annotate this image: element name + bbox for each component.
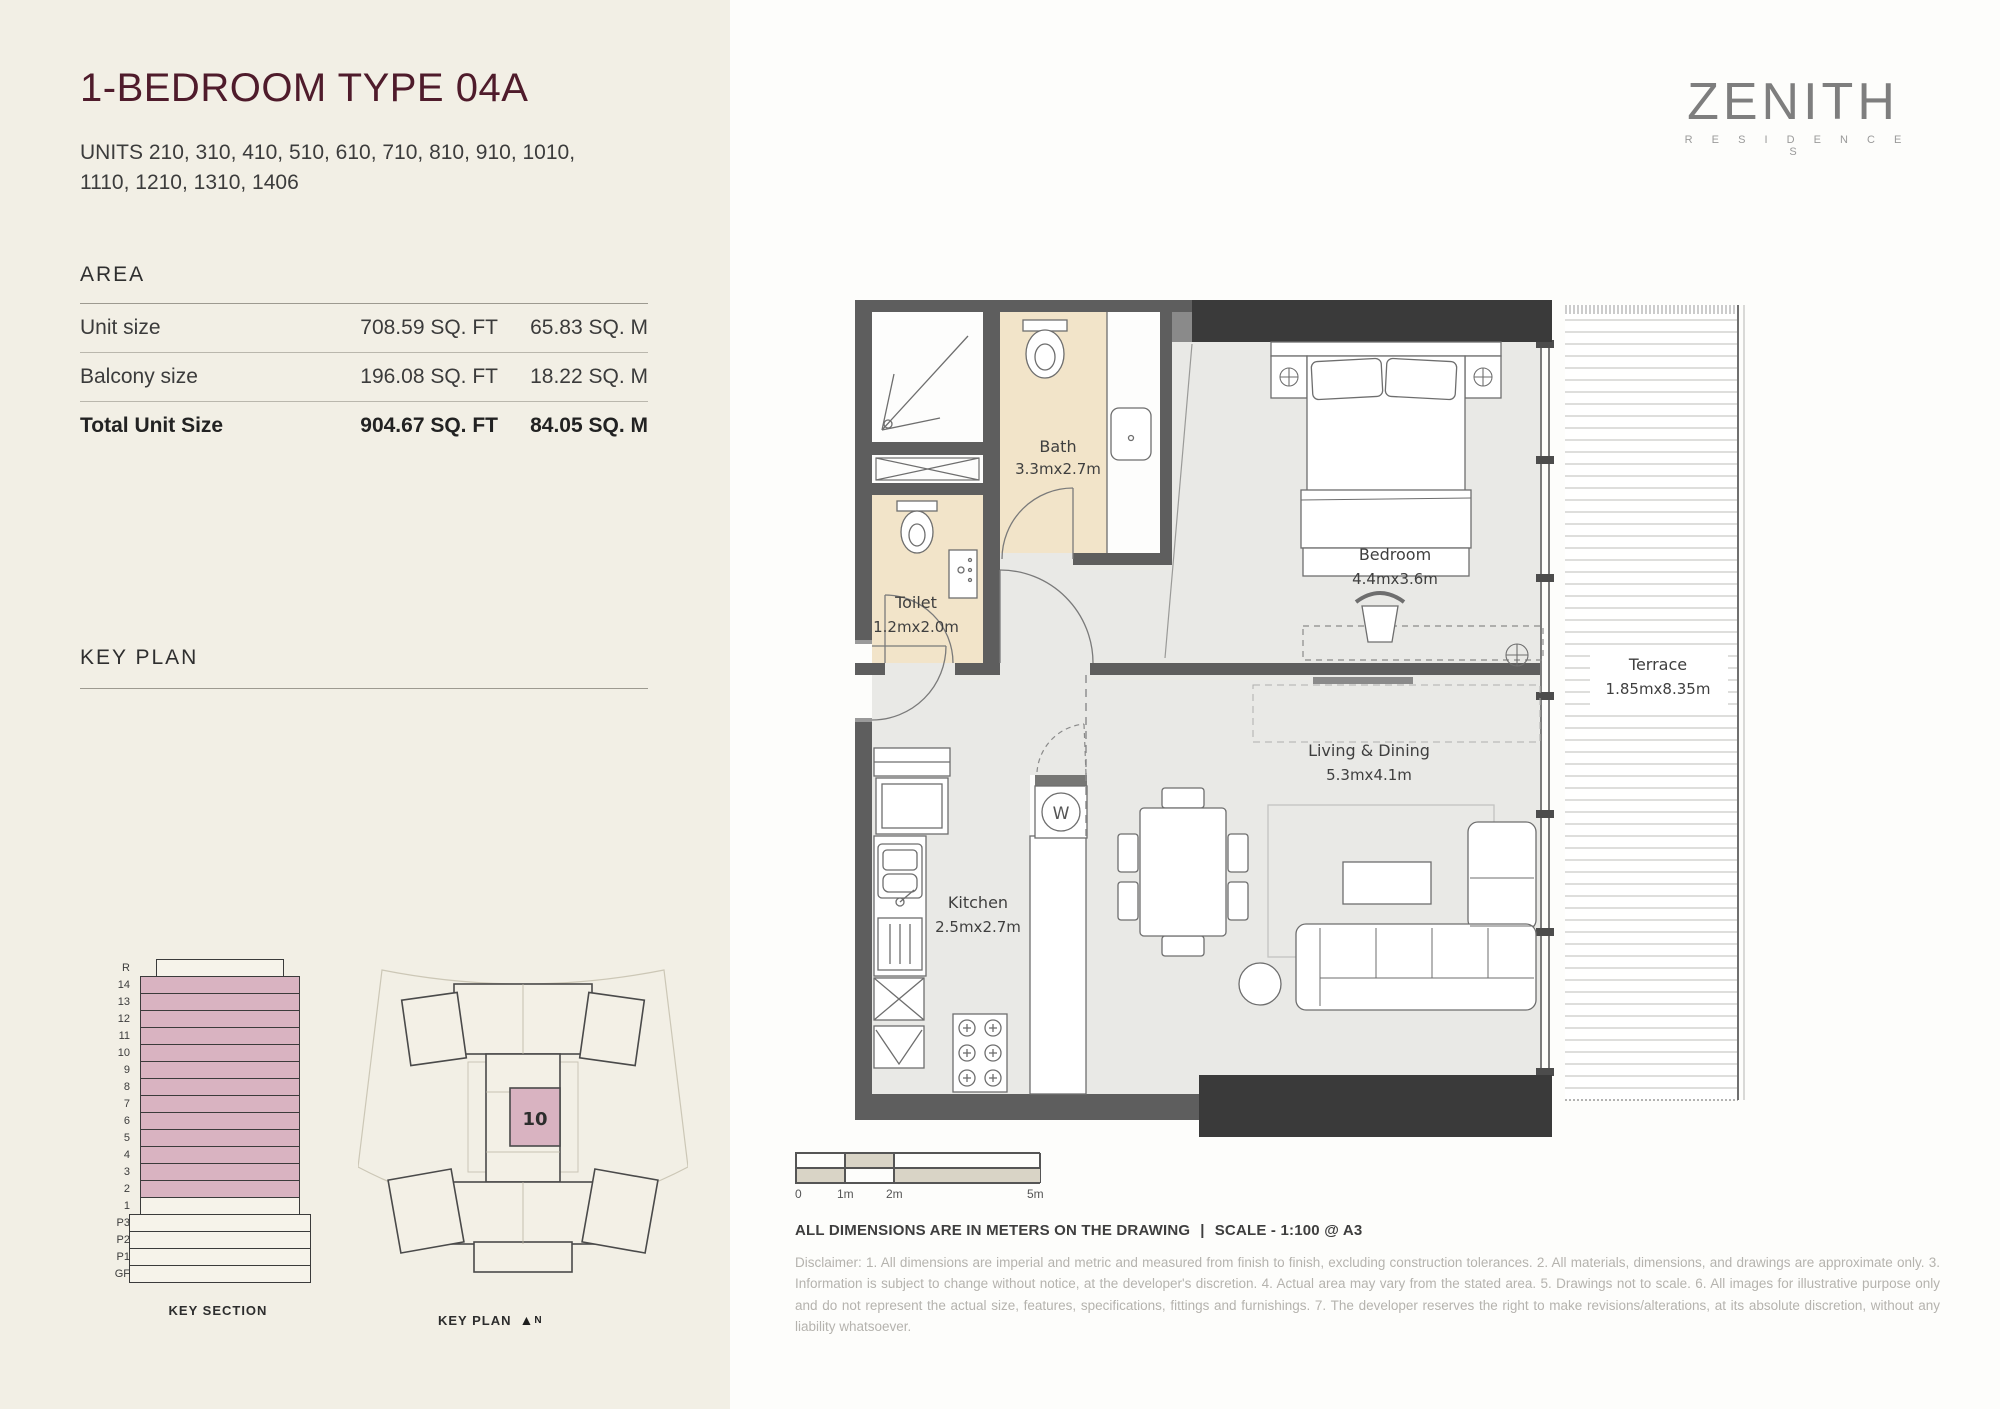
key-section-row: 14 (100, 977, 311, 994)
key-section-row: 12 (100, 1011, 311, 1028)
floor-label: 10 (100, 1045, 140, 1062)
floor-bar-5 (140, 1129, 300, 1147)
floor-bar-13 (140, 993, 300, 1011)
floor-bar-11 (140, 1027, 300, 1045)
area-row-sqm: 18.22 SQ. M (498, 365, 648, 389)
key-plan-rule (80, 688, 648, 689)
area-row-balcony-size: Balcony size 196.08 SQ. FT 18.22 SQ. M (80, 353, 648, 402)
scale-cell (796, 1153, 845, 1168)
key-section-row: 8 (100, 1079, 311, 1096)
north-arrow-icon: ▲N (520, 1312, 543, 1328)
floor-bar-2 (140, 1180, 300, 1198)
area-row-label: Unit size (80, 316, 303, 340)
floor-bar-10 (140, 1044, 300, 1062)
kitchen-label: Kitchen (948, 893, 1008, 912)
scale-cell (845, 1153, 894, 1168)
floor-label: 4 (100, 1147, 140, 1164)
floor-bar-1 (140, 1197, 300, 1215)
area-heading: AREA (80, 263, 145, 287)
scale-label-1m: 1m (837, 1187, 854, 1201)
scale-bar-labels: 0 1m 2m 5m (795, 1187, 1040, 1203)
bedroom-label: Bedroom (1359, 545, 1431, 564)
floor-label: 7 (100, 1096, 140, 1113)
key-section-row: 5 (100, 1130, 311, 1147)
floor-label: 13 (100, 994, 140, 1011)
floor-label: 12 (100, 1011, 140, 1028)
floor-bar-4 (140, 1146, 300, 1164)
scale-label-0: 0 (795, 1187, 802, 1201)
scale-label-2m: 2m (886, 1187, 903, 1201)
scale-note: SCALE - 1:100 @ A3 (1215, 1222, 1363, 1239)
floor-label: R (100, 960, 140, 977)
floor-label: 11 (100, 1028, 140, 1045)
key-plan-heading: KEY PLAN (80, 646, 198, 670)
key-section-row: 10 (100, 1045, 311, 1062)
living-dims: 5.3mx4.1m (1326, 766, 1412, 784)
key-plan-unit-number: 10 (522, 1109, 547, 1130)
north-label: N (534, 1315, 542, 1326)
scale-cell (845, 1168, 894, 1183)
area-row-unit-size: Unit size 708.59 SQ. FT 65.83 SQ. M (80, 304, 648, 353)
terrace-dims: 1.85mx8.35m (1606, 680, 1711, 698)
floor-plan: Terrace 1.85mx8.35m (820, 278, 1770, 1138)
brand-subtitle: R E S I D E N C E S (1668, 134, 1918, 158)
key-plan-diagram: 10 (358, 942, 688, 1292)
floor-bar-R (156, 959, 284, 977)
area-table: Unit size 708.59 SQ. FT 65.83 SQ. M Balc… (80, 304, 648, 450)
toilet-dims: 1.2mx2.0m (873, 618, 959, 636)
area-total-sqft: 904.67 SQ. FT (303, 414, 498, 438)
floor-bar-GF (129, 1265, 311, 1283)
key-section-row: 7 (100, 1096, 311, 1113)
area-row-sqft: 708.59 SQ. FT (303, 316, 498, 340)
key-section-row: P2 (100, 1232, 311, 1249)
scale-bar: 0 1m 2m 5m (795, 1152, 1040, 1203)
floor-label: 3 (100, 1164, 140, 1181)
floor-label: 2 (100, 1181, 140, 1198)
area-row-sqft: 196.08 SQ. FT (303, 365, 498, 389)
washer-label: W (1053, 804, 1070, 824)
key-section-row: 13 (100, 994, 311, 1011)
key-plan-caption-row: KEY PLAN ▲N (438, 1312, 543, 1328)
toilet-label: Toilet (894, 593, 937, 612)
kitchen-dims: 2.5mx2.7m (935, 918, 1021, 936)
key-section-row: 9 (100, 1062, 311, 1079)
key-section-row: 4 (100, 1147, 311, 1164)
floor-bar-3 (140, 1163, 300, 1181)
bedroom-dims: 4.4mx3.6m (1352, 570, 1438, 588)
key-section-row: 3 (100, 1164, 311, 1181)
area-total-sqm: 84.05 SQ. M (498, 414, 648, 438)
floor-label: 1 (100, 1198, 140, 1215)
area-row-total: Total Unit Size 904.67 SQ. FT 84.05 SQ. … (80, 402, 648, 450)
key-section-row: P1 (100, 1249, 311, 1266)
dimensions-note-row: ALL DIMENSIONS ARE IN METERS ON THE DRAW… (795, 1222, 1362, 1239)
area-row-label: Balcony size (80, 365, 303, 389)
left-panel: 1-BEDROOM TYPE 04A UNITS 210, 310, 410, … (0, 0, 730, 1409)
area-row-sqm: 65.83 SQ. M (498, 316, 648, 340)
scale-cell (796, 1168, 845, 1183)
floor-bar-6 (140, 1112, 300, 1130)
living-label: Living & Dining (1308, 741, 1430, 760)
floor-bar-12 (140, 1010, 300, 1028)
key-section-row: 6 (100, 1113, 311, 1130)
key-section-row: P3 (100, 1215, 311, 1232)
scale-bar-grid (795, 1152, 1040, 1184)
page-title: 1-BEDROOM TYPE 04A (80, 66, 528, 111)
key-section-row: GF (100, 1266, 311, 1283)
bath-dims: 3.3mx2.7m (1015, 460, 1101, 478)
key-section-row: 1 (100, 1198, 311, 1215)
key-section-rows: R1413121110987654321P3P2P1GF (100, 960, 311, 1283)
floor-bar-P3 (129, 1214, 311, 1232)
terrace-label: Terrace (1628, 655, 1687, 674)
scale-cell (894, 1168, 1041, 1183)
brand-name: ZENITH (1668, 72, 1918, 132)
floor-bar-14 (140, 976, 300, 994)
floor-label: 6 (100, 1113, 140, 1130)
terrace: Terrace 1.85mx8.35m (1565, 305, 1744, 1100)
note-separator: | (1200, 1222, 1204, 1239)
floor-label: 9 (100, 1062, 140, 1079)
disclaimer-text: Disclaimer: 1. All dimensions are imperi… (795, 1252, 1940, 1337)
key-plan-caption: KEY PLAN (438, 1313, 512, 1328)
area-total-label: Total Unit Size (80, 414, 303, 438)
key-section-row: R (100, 960, 311, 977)
floor-bar-8 (140, 1078, 300, 1096)
floor-bar-9 (140, 1061, 300, 1079)
brand-logo: ZENITH R E S I D E N C E S (1668, 72, 1918, 158)
floor-label: 5 (100, 1130, 140, 1147)
key-section-caption: KEY SECTION (118, 1303, 318, 1318)
key-section-row: 11 (100, 1028, 311, 1045)
page: 1-BEDROOM TYPE 04A UNITS 210, 310, 410, … (0, 0, 2000, 1409)
dimensions-note: ALL DIMENSIONS ARE IN METERS ON THE DRAW… (795, 1222, 1190, 1239)
key-section-row: 2 (100, 1181, 311, 1198)
bath-label: Bath (1039, 437, 1076, 456)
scale-cell (894, 1153, 1041, 1168)
floor-bar-P2 (129, 1231, 311, 1249)
floor-bar-7 (140, 1095, 300, 1113)
units-list: UNITS 210, 310, 410, 510, 610, 710, 810,… (80, 138, 620, 199)
floor-label: 14 (100, 977, 140, 994)
floor-bar-P1 (129, 1248, 311, 1266)
scale-label-5m: 5m (1027, 1187, 1044, 1201)
floor-label: 8 (100, 1079, 140, 1096)
